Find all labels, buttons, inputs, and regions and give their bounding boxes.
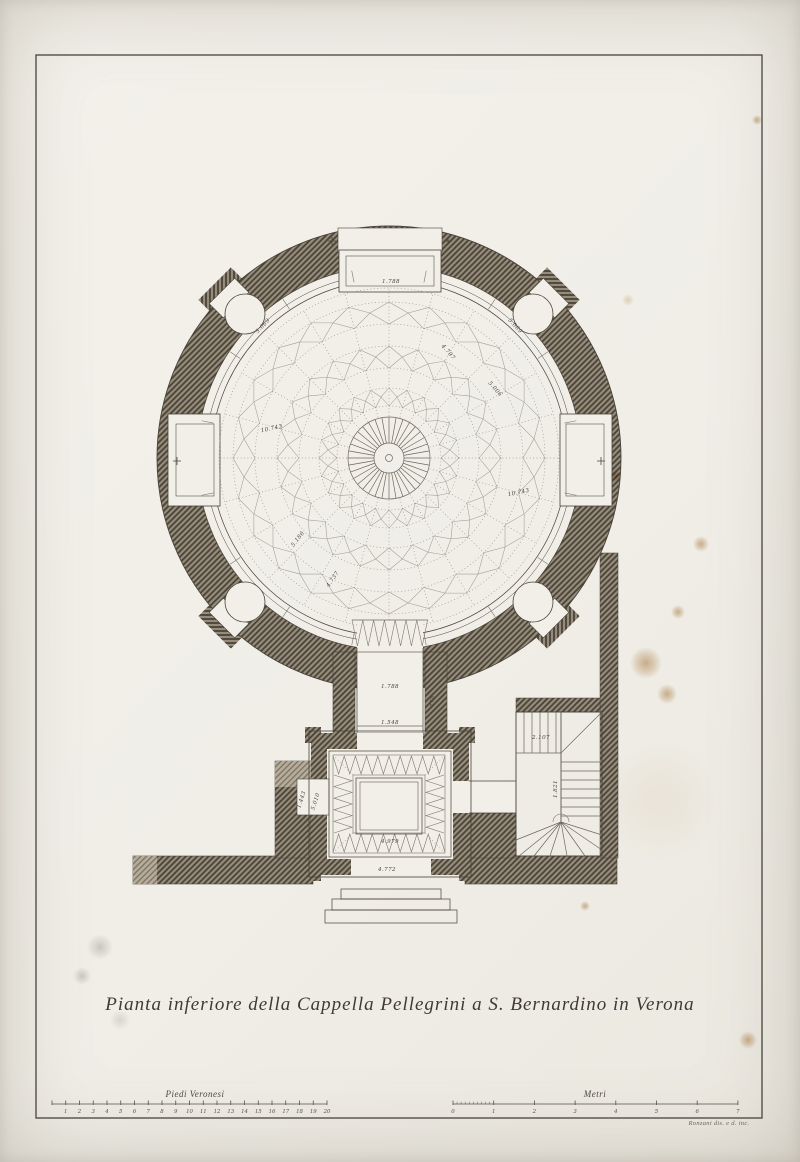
svg-text:2.107: 2.107: [531, 735, 550, 741]
svg-text:2: 2: [532, 1109, 537, 1115]
svg-text:6: 6: [133, 1109, 137, 1115]
svg-text:7: 7: [736, 1109, 740, 1115]
scale-label-piedi-veronesi: Piedi Veronesi: [120, 1089, 270, 1099]
svg-text:3: 3: [573, 1109, 577, 1115]
svg-text:9: 9: [174, 1109, 178, 1115]
scale-bar-piedi: 1234567891011121314151617181920: [52, 1101, 331, 1116]
plate-title: Pianta inferiore della Cappella Pellegri…: [0, 994, 800, 1016]
svg-text:14: 14: [241, 1109, 248, 1115]
svg-text:4: 4: [104, 1109, 109, 1115]
svg-text:13: 13: [227, 1109, 234, 1115]
svg-text:1: 1: [492, 1109, 495, 1115]
scale-label-metri: Metri: [555, 1089, 635, 1099]
svg-text:4.797: 4.797: [439, 343, 456, 361]
staircase: [516, 712, 602, 856]
svg-text:10.743: 10.743: [260, 424, 283, 434]
engraver-credit: Ronzani dis. e d. inc.: [664, 1120, 774, 1127]
svg-text:11: 11: [200, 1109, 207, 1115]
svg-text:15: 15: [255, 1109, 262, 1115]
svg-text:4.737: 4.737: [325, 570, 341, 589]
svg-text:17: 17: [282, 1109, 289, 1115]
svg-text:18: 18: [296, 1109, 303, 1115]
svg-text:5: 5: [119, 1109, 123, 1115]
svg-text:20: 20: [323, 1109, 331, 1115]
svg-text:1: 1: [64, 1109, 67, 1115]
svg-text:1.548: 1.548: [381, 720, 399, 726]
plate-border: [36, 55, 762, 1118]
svg-text:5.186: 5.186: [290, 530, 306, 548]
engraving-plate: 1.7885.0695.0694.7975.00610.74310.7435.1…: [0, 0, 800, 1162]
svg-text:12: 12: [214, 1109, 221, 1115]
svg-text:10.743: 10.743: [507, 488, 530, 498]
scale-bar-metri: 01234567: [451, 1101, 740, 1116]
svg-text:1.788: 1.788: [381, 684, 399, 690]
svg-text:1.821: 1.821: [553, 780, 559, 798]
svg-text:4.772: 4.772: [377, 867, 396, 873]
svg-text:8: 8: [160, 1109, 164, 1115]
svg-text:0: 0: [451, 1109, 455, 1115]
svg-text:19: 19: [310, 1109, 317, 1115]
svg-text:6: 6: [695, 1109, 699, 1115]
svg-text:7: 7: [147, 1109, 151, 1115]
entrance-steps: [325, 889, 457, 923]
svg-text:778: 778: [430, 695, 436, 707]
svg-text:4: 4: [613, 1109, 618, 1115]
floor-plan-drawing: 1.7885.0695.0694.7975.00610.74310.7435.1…: [0, 0, 800, 1162]
svg-text:16: 16: [269, 1109, 276, 1115]
svg-text:4.979: 4.979: [380, 839, 399, 845]
svg-text:10: 10: [186, 1109, 193, 1115]
svg-text:5: 5: [655, 1109, 659, 1115]
svg-text:3: 3: [92, 1109, 96, 1115]
svg-text:2: 2: [77, 1109, 82, 1115]
svg-text:1.788: 1.788: [382, 279, 400, 285]
